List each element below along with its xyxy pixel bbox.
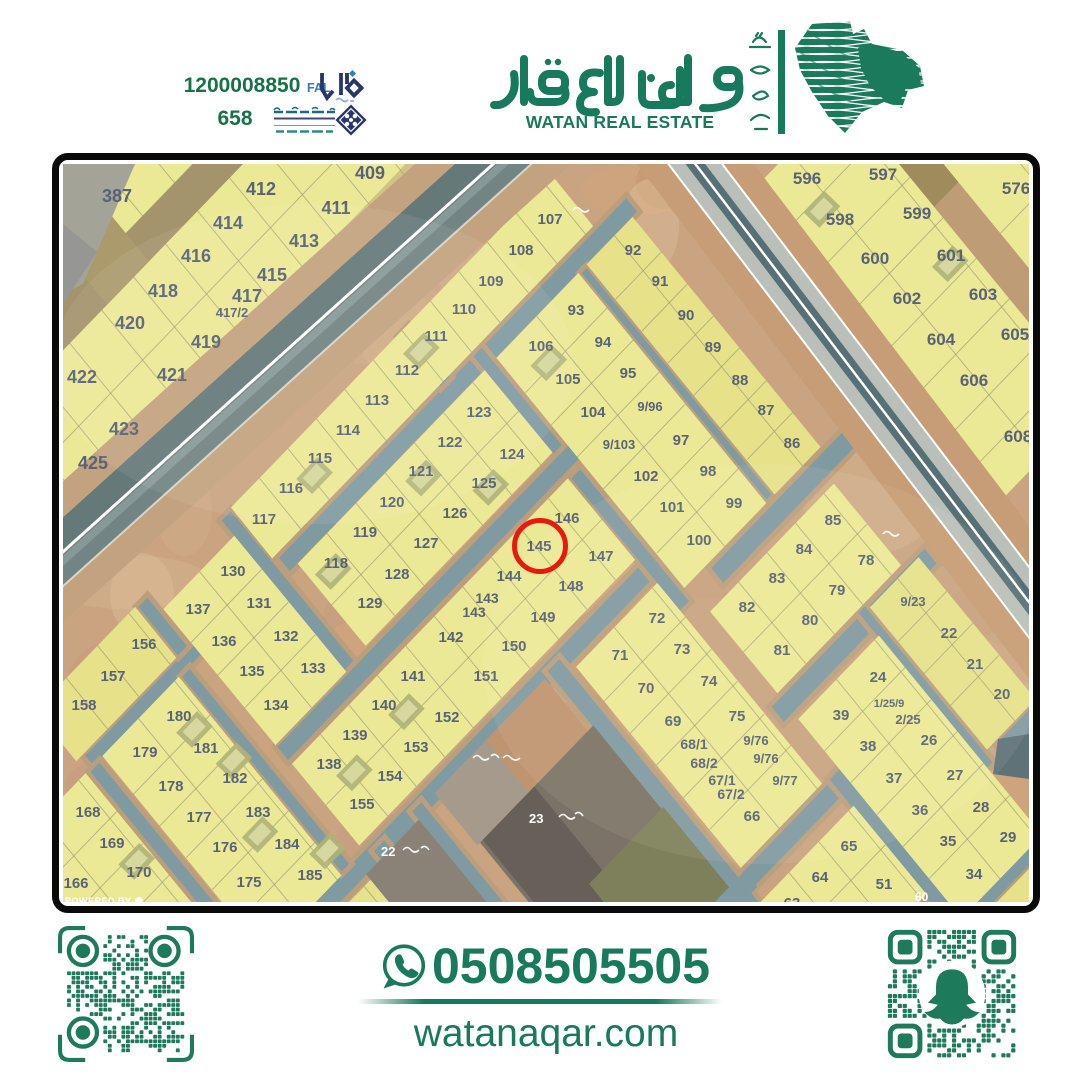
svg-text:FAL: FAL xyxy=(307,81,331,95)
